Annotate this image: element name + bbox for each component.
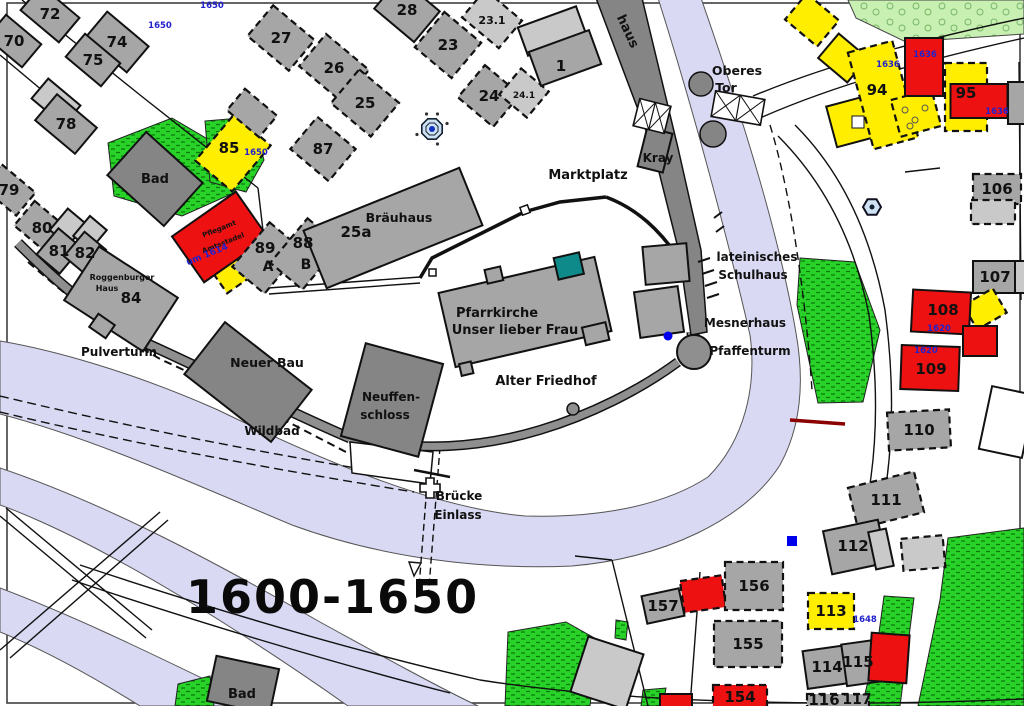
building-r157: [680, 575, 726, 613]
fountain-post-dot-4: [415, 133, 418, 136]
building-number-107: 107: [979, 268, 1010, 286]
building-number-110: 110: [903, 421, 934, 439]
pfaffenturm-tower: [677, 335, 711, 369]
churchyard-gate-post-2: [429, 269, 436, 276]
fountain-post-dot-2: [436, 112, 439, 115]
blue-square-marker: [787, 536, 797, 546]
place-label-wildbad: Wildbad: [244, 424, 299, 438]
place-label-alter-friedhof: Alter Friedhof: [495, 374, 597, 389]
place-label-bad: Bad: [141, 172, 169, 187]
place-label-haus: Haus: [96, 284, 119, 293]
building-number-157: 157: [647, 597, 678, 615]
building-number-106: 106: [981, 180, 1012, 198]
building-r115: [868, 633, 909, 684]
building-r108b: [963, 326, 997, 356]
building-number-81: 81: [49, 242, 70, 260]
year-label-4: 1636: [876, 60, 900, 70]
fountain-post-dot-3: [425, 112, 428, 115]
building-number-1: 1: [556, 57, 566, 75]
building-number-154: 154: [724, 688, 755, 706]
building-number-27: 27: [271, 29, 292, 47]
place-label-kray: Kray: [643, 151, 674, 165]
place-label-pfarrkirche: Pfarrkirche: [456, 306, 538, 321]
place-label-brücke: Brücke: [436, 489, 483, 503]
building-number-111: 111: [870, 491, 901, 509]
place-label-schulhaus: Schulhaus: [718, 268, 787, 282]
building-number-78: 78: [56, 115, 77, 133]
place-label-neuer-bau: Neuer Bau: [230, 355, 304, 370]
building-number-75: 75: [83, 51, 104, 69]
place-label-117: 117: [842, 692, 871, 706]
building-bu2: [901, 535, 946, 571]
courtyard-square: [852, 116, 864, 128]
town-map-svg: 707274757879808182848587272625282323.124…: [0, 0, 1024, 706]
building-number-113: 113: [815, 602, 846, 620]
place-label-lateinisches: lateinisches: [717, 250, 798, 264]
building-number-88: 88: [293, 234, 314, 252]
building-number-108: 108: [927, 301, 958, 319]
building-number-72: 72: [40, 5, 61, 23]
place-label-marktplatz: Marktplatz: [548, 168, 627, 183]
building-r154b: [660, 694, 692, 706]
building-b107b: [1015, 261, 1024, 293]
building-mesner1: [642, 243, 689, 285]
churchyard-gate-post: [520, 205, 530, 215]
building-number-155: 155: [732, 635, 763, 653]
blue-dot-marker: [664, 332, 673, 341]
building-number-156: 156: [738, 577, 769, 595]
building-number-82: 82: [75, 244, 96, 262]
oberes-tor-tower-1: [689, 72, 713, 96]
building-number-23: 23: [438, 36, 459, 54]
place-label-mesnerhaus: Mesnerhaus: [704, 316, 786, 330]
building-number-28: 28: [397, 1, 418, 19]
building-red-top: [905, 38, 943, 96]
building-b106b: [971, 200, 1015, 224]
place-label-a: A: [263, 259, 274, 275]
year-label-1: 1650: [148, 21, 172, 31]
place-label-neuffen-: Neuffen-: [362, 390, 420, 404]
place-label-oberes: Oberes: [712, 63, 762, 78]
oberes-tor-tower-2: [700, 121, 726, 147]
building-number-116: 116: [808, 691, 839, 706]
fountain-post-dot-5: [436, 142, 439, 145]
building-number-24: 24: [479, 87, 500, 105]
place-label-tor: Tor: [715, 80, 737, 95]
wall-turret: [567, 403, 579, 415]
place-label-schloss: schloss: [360, 408, 409, 422]
building-number-24.1: 24.1: [513, 91, 535, 101]
place-label-pulverturm: Pulverturm: [81, 345, 157, 359]
building-number-26: 26: [324, 59, 345, 77]
fountain-center-dot: [429, 126, 435, 132]
well-hexagon-dot: [870, 205, 875, 210]
place-label-bad: Bad: [228, 687, 256, 702]
building-number-112: 112: [837, 537, 868, 555]
building-mesner2: [634, 286, 684, 338]
place-label-unser-lieber-frau: Unser lieber Frau: [452, 323, 579, 338]
year-label-9: 1620: [914, 346, 938, 356]
building-number-80: 80: [32, 219, 53, 237]
building-number-70: 70: [4, 32, 25, 50]
year-label-5: 1636: [913, 50, 937, 60]
place-label-pfaffenturm: Pfaffenturm: [709, 344, 790, 358]
building-number-115: 115: [842, 653, 873, 671]
garden-area-9: [615, 620, 628, 640]
fountain-post-dot-1: [445, 122, 448, 125]
place-label-einlass: Einlass: [434, 508, 481, 522]
building-number-74: 74: [107, 33, 128, 51]
place-label-b: B: [301, 257, 312, 273]
building-number-87: 87: [313, 140, 334, 158]
historical-town-map: 707274757879808182848587272625282323.124…: [0, 0, 1024, 706]
building-number-23.1: 23.1: [478, 14, 505, 27]
building-edge-g1: [1008, 82, 1024, 124]
building-number-25: 25: [355, 94, 376, 112]
building-number-89: 89: [255, 239, 276, 257]
building-number-85: 85: [219, 139, 240, 157]
year-label-10: 1648: [853, 615, 877, 625]
building-number-25a: 25a: [341, 223, 372, 241]
building-number-114: 114: [811, 658, 842, 676]
period-label: 1600-1650: [186, 570, 479, 624]
building-number-84: 84: [121, 289, 142, 307]
year-label-2: 1650: [200, 1, 224, 11]
building-number-95: 95: [956, 84, 977, 102]
year-label-6: 1636: [985, 107, 1009, 117]
place-label-roggenburger: Roggenburger: [90, 273, 155, 282]
place-label-bräuhaus: Bräuhaus: [366, 210, 433, 225]
year-label-3: 1650: [244, 148, 268, 158]
building-number-109: 109: [915, 360, 946, 378]
building-number-94: 94: [867, 81, 888, 99]
building-number-79: 79: [0, 181, 19, 199]
year-label-8: 1620: [927, 324, 951, 334]
